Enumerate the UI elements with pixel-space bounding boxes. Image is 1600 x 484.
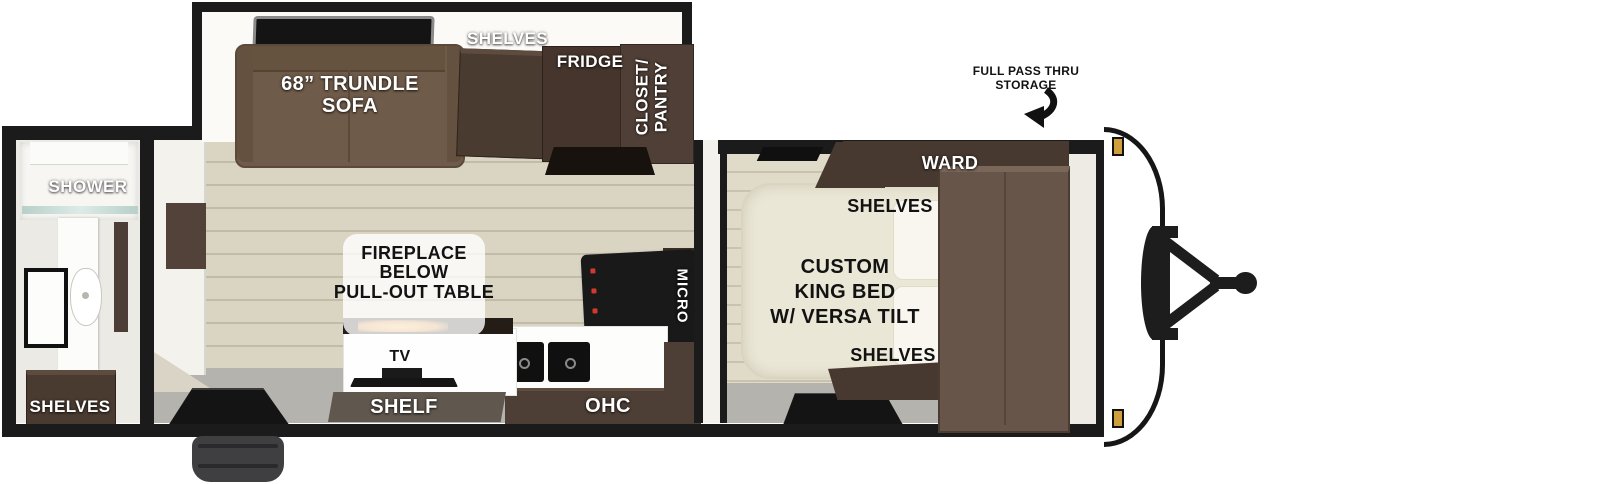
wall-rear [2, 126, 16, 437]
fireplace-label-line1: FIREPLACE [333, 244, 495, 263]
wall-top-rear [2, 126, 196, 140]
shower-head-ledge [30, 142, 128, 165]
toilet-flush-button [82, 292, 89, 299]
partition-gap [703, 140, 720, 423]
shower-label: SHOWER [28, 178, 148, 196]
shelf-label: SHELF [334, 397, 474, 419]
slideout-wall-left [192, 2, 202, 140]
sofa-label-line1: 68” TRUNDLE [250, 74, 450, 96]
pass-thru-label-line1: FULL PASS THRU [960, 64, 1092, 78]
tall-wardrobe [938, 166, 1070, 433]
partition-wall-living-side [694, 140, 703, 423]
bathroom-cabinet-strip [114, 222, 128, 332]
sofa-label: 68” TRUNDLE SOFA [250, 74, 450, 117]
floorplan-canvas: SHOWER SHELVES 68” TRUNDLE SOFA SHELVES … [0, 0, 1600, 484]
front-interior-gap [1066, 154, 1096, 424]
bed-label: CUSTOM KING BED W/ VERSA TILT [745, 255, 945, 330]
bed-label-line2: KING BED [745, 280, 945, 305]
fireplace-label-line2: BELOW [333, 263, 495, 282]
sofa-backrest [251, 46, 445, 72]
tv-label: TV [370, 348, 430, 365]
bed-label-line1: CUSTOM [745, 255, 945, 280]
tongue-hitch [1140, 220, 1260, 346]
pass-thru-arrow [1018, 88, 1066, 132]
bedroom-window [757, 147, 824, 161]
closet-label-line1: CLOSET/ [633, 59, 652, 135]
shower-glass-shelf [22, 206, 138, 214]
slideout-shelves-label: SHELVES [450, 30, 565, 48]
tv-screen [350, 378, 458, 387]
bathroom-mirror [24, 268, 68, 348]
bedroom-shelves-upper-label: SHELVES [830, 197, 950, 216]
partition-wall-bedroom-side [720, 153, 727, 423]
stove-knob-left [519, 358, 530, 369]
slideout-wall-top [192, 2, 692, 12]
marker-light-bottom [1112, 409, 1124, 428]
fireplace-table-label: FIREPLACE BELOW PULL-OUT TABLE [333, 244, 495, 302]
closet-pantry-label: CLOSET/ PANTRY [633, 59, 670, 135]
marker-light-top [1112, 137, 1124, 156]
bathroom-shelves-label: SHELVES [14, 398, 126, 416]
entry-steps [192, 436, 284, 482]
micro-label: MICRO [673, 269, 690, 324]
fireplace-label-line3: PULL-OUT TABLE [333, 283, 495, 302]
entry-step-tread-1 [198, 444, 278, 448]
microwave-buttons [590, 268, 595, 273]
entry-step-tread-2 [198, 464, 278, 468]
range-hood-counter [545, 147, 655, 175]
wardrobe-seam [1004, 172, 1006, 425]
sofa-label-line2: SOFA [250, 96, 450, 118]
bed-label-line3: W/ VERSA TILT [745, 305, 945, 330]
ward-label: WARD [900, 154, 1000, 173]
bedroom-shelves-lower-label: SHELVES [833, 346, 953, 365]
stove-knob-right [565, 358, 576, 369]
tv-stand [382, 368, 422, 378]
closet-label-line2: PANTRY [652, 59, 671, 135]
ohc-label: OHC [538, 396, 678, 418]
wall-panel-brown [166, 203, 206, 269]
